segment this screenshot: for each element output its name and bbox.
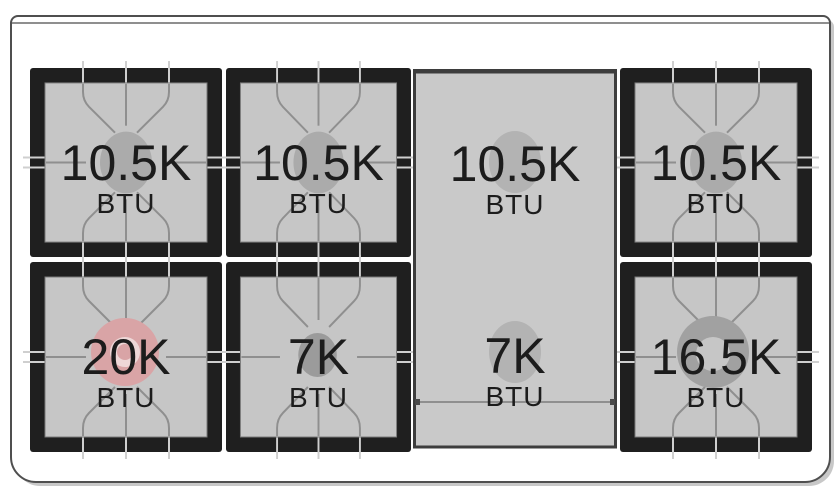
griddle-front-zone: 7K BTU (413, 262, 617, 450)
btu-value: 7K (484, 331, 545, 381)
burner-left-front: 20K BTU (30, 262, 222, 452)
burner-grate-icon (620, 262, 812, 452)
btu-value: 10.5K (450, 139, 581, 189)
griddle-rear-zone: 10.5K BTU (413, 69, 617, 258)
burner-grate-icon (226, 262, 411, 452)
burner-grate-icon (30, 262, 222, 452)
burner-left-rear: 10.5K BTU (30, 68, 222, 257)
btu-unit: BTU (486, 191, 545, 219)
burner-grate-icon (30, 68, 222, 257)
burner-grate-icon (620, 68, 812, 257)
btu-unit: BTU (486, 383, 545, 411)
burner-btu-label: 7K BTU (413, 277, 617, 465)
burner-right-rear: 10.5K BTU (620, 68, 812, 257)
back-trim-line (12, 22, 829, 24)
burner-grate-icon (226, 68, 411, 257)
burner-right-front: 16.5K BTU (620, 262, 812, 452)
burner-center-left-front: 7K BTU (226, 262, 411, 452)
burner-btu-label: 10.5K BTU (413, 84, 617, 273)
burner-center-left-rear: 10.5K BTU (226, 68, 411, 257)
griddle-plate: 10.5K BTU 7K BTU (413, 69, 617, 450)
